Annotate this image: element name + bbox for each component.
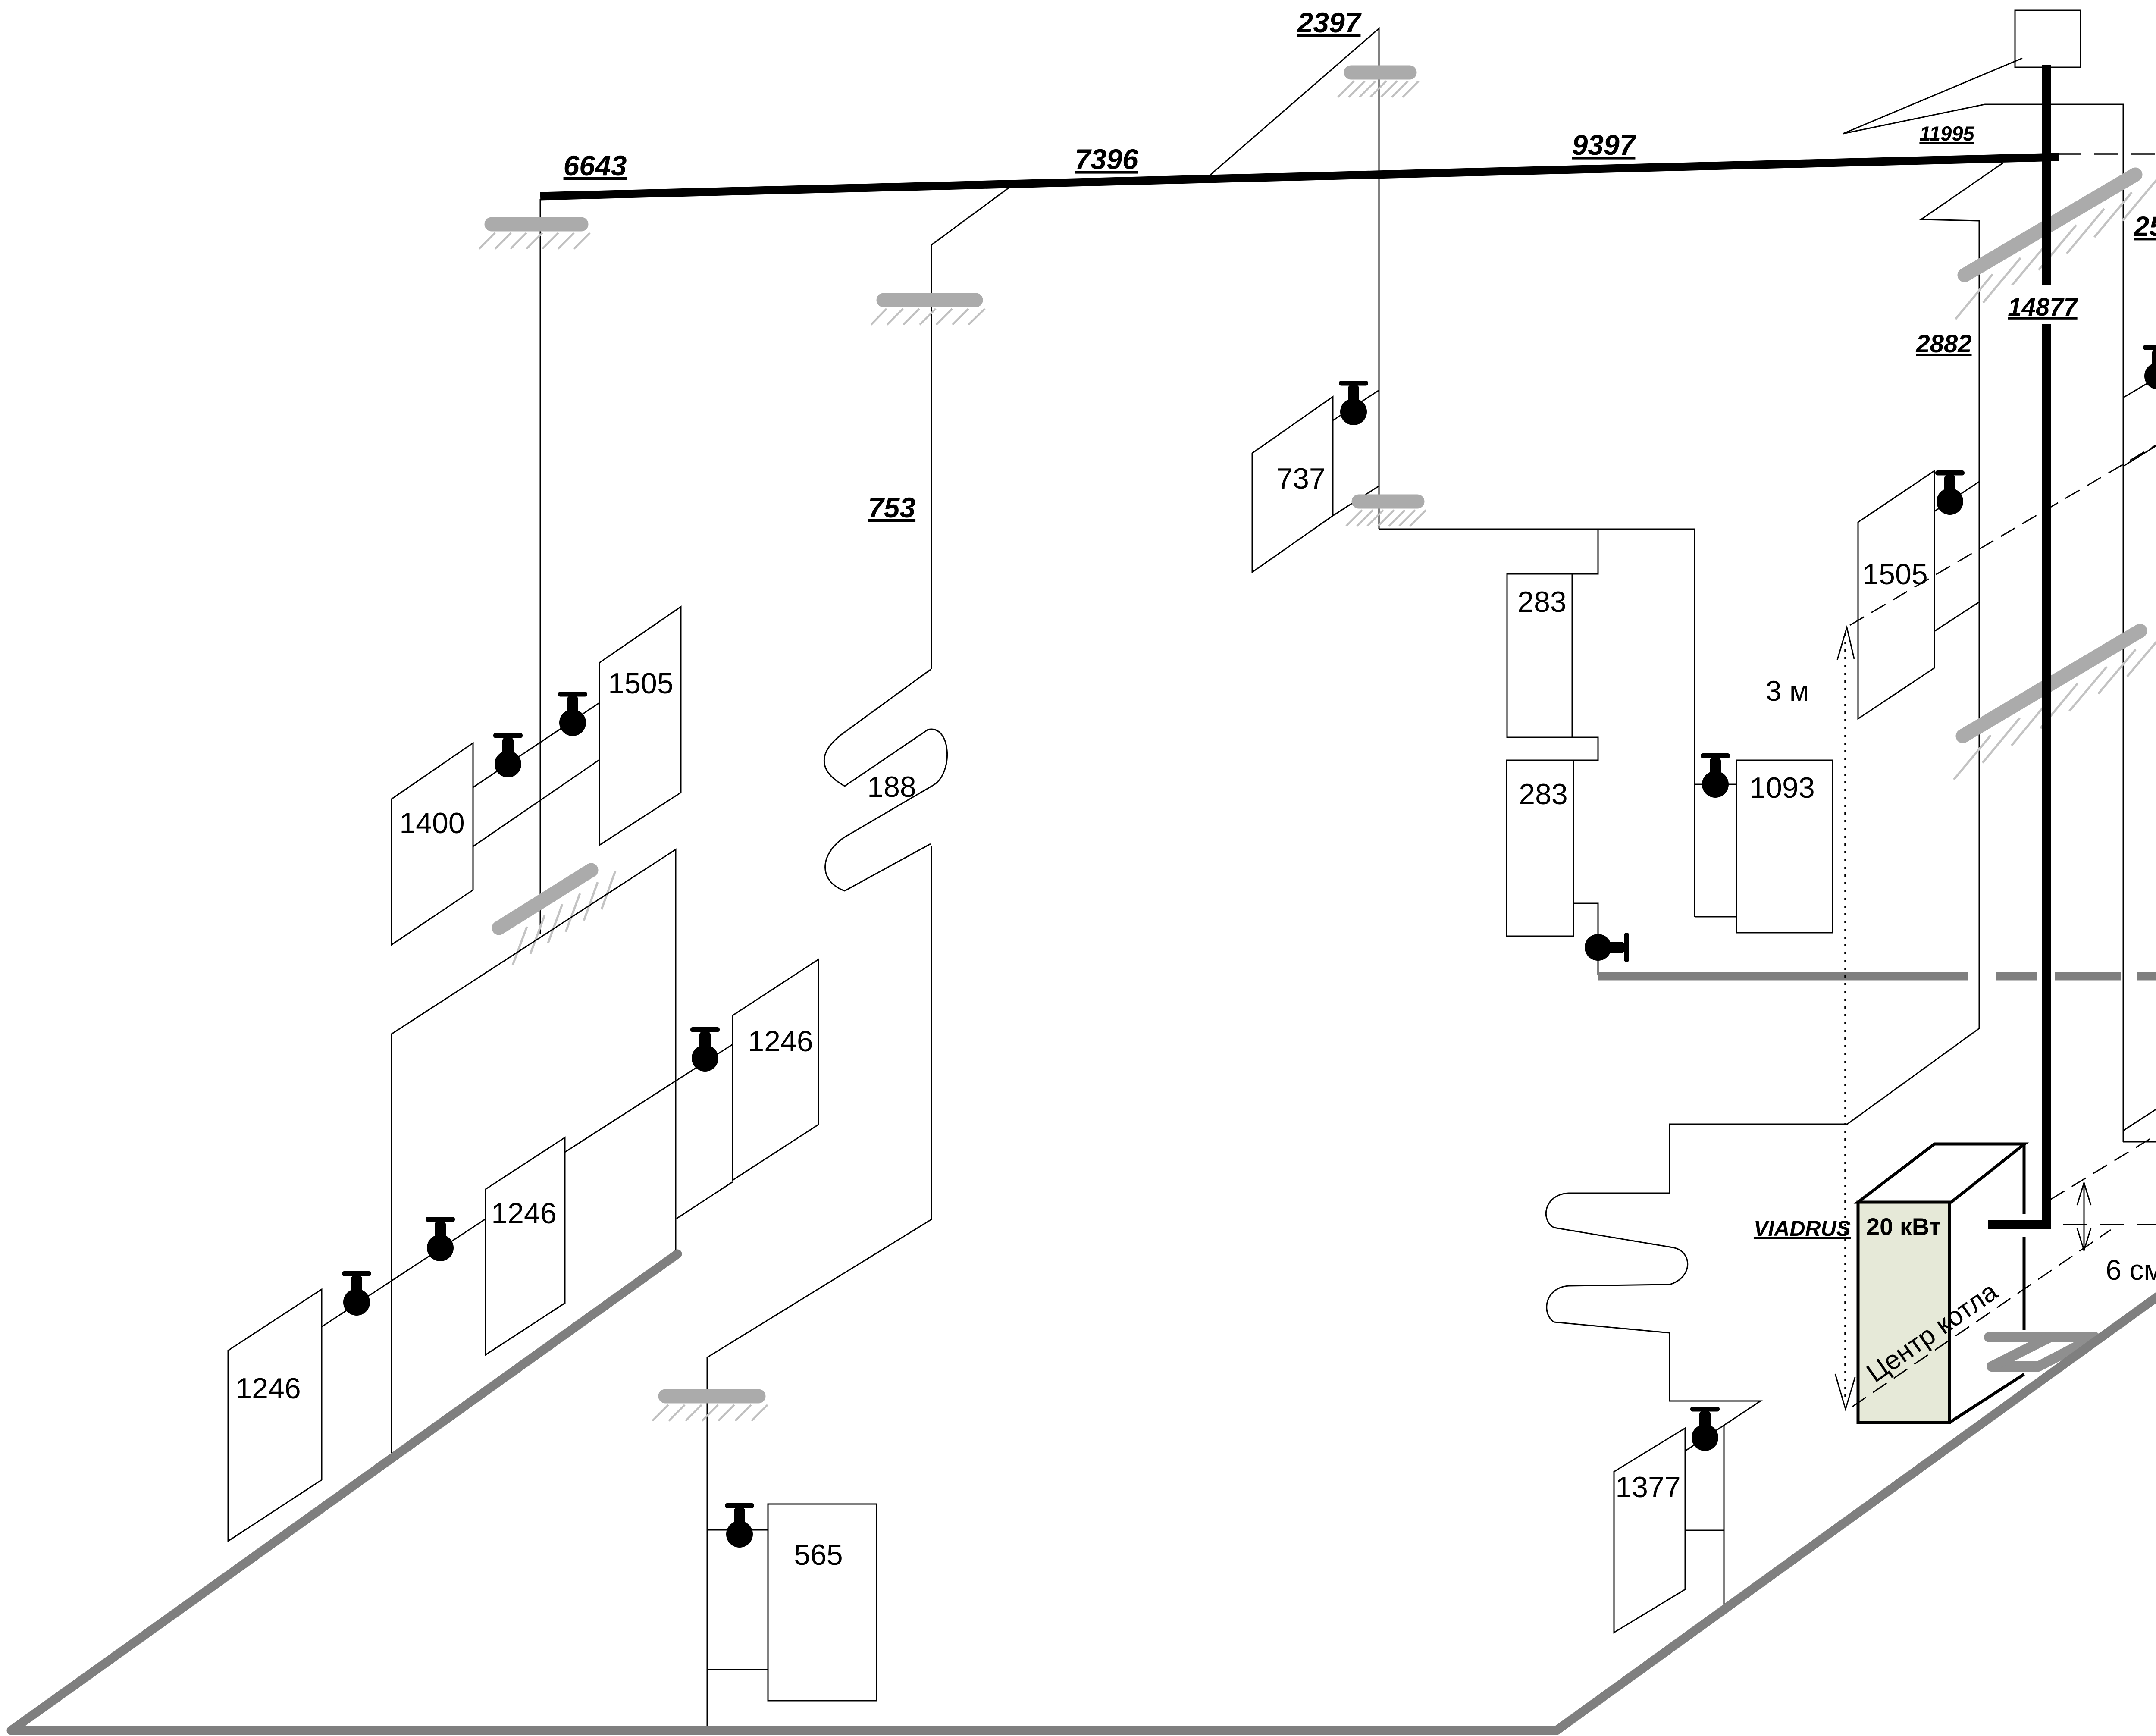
svg-text:2598: 2598 xyxy=(2134,211,2156,242)
svg-text:3 м: 3 м xyxy=(1766,675,1809,707)
svg-text:2882: 2882 xyxy=(1915,330,1971,358)
svg-text:6643: 6643 xyxy=(564,150,627,182)
svg-text:VIADRUS: VIADRUS xyxy=(1754,1216,1851,1241)
svg-text:1505: 1505 xyxy=(608,667,673,700)
svg-text:9397: 9397 xyxy=(1572,129,1637,161)
svg-text:1400: 1400 xyxy=(399,807,464,840)
svg-text:737: 737 xyxy=(1276,462,1325,495)
svg-text:20 кВт: 20 кВт xyxy=(1866,1213,1941,1240)
svg-text:1246: 1246 xyxy=(491,1197,556,1230)
svg-text:283: 283 xyxy=(1519,778,1567,811)
svg-text:188: 188 xyxy=(867,771,916,803)
svg-text:6 см: 6 см xyxy=(2106,1254,2156,1286)
svg-text:1246: 1246 xyxy=(235,1372,301,1405)
svg-text:7396: 7396 xyxy=(1075,143,1139,175)
svg-text:14877: 14877 xyxy=(2008,293,2078,321)
svg-text:1246: 1246 xyxy=(748,1025,813,1058)
svg-text:11995: 11995 xyxy=(1919,122,1974,145)
svg-text:2397: 2397 xyxy=(1297,6,1362,38)
svg-text:283: 283 xyxy=(1517,586,1566,618)
svg-text:1377: 1377 xyxy=(1615,1471,1680,1504)
svg-text:753: 753 xyxy=(868,492,915,523)
svg-text:565: 565 xyxy=(794,1539,843,1571)
svg-text:1093: 1093 xyxy=(1749,771,1814,804)
